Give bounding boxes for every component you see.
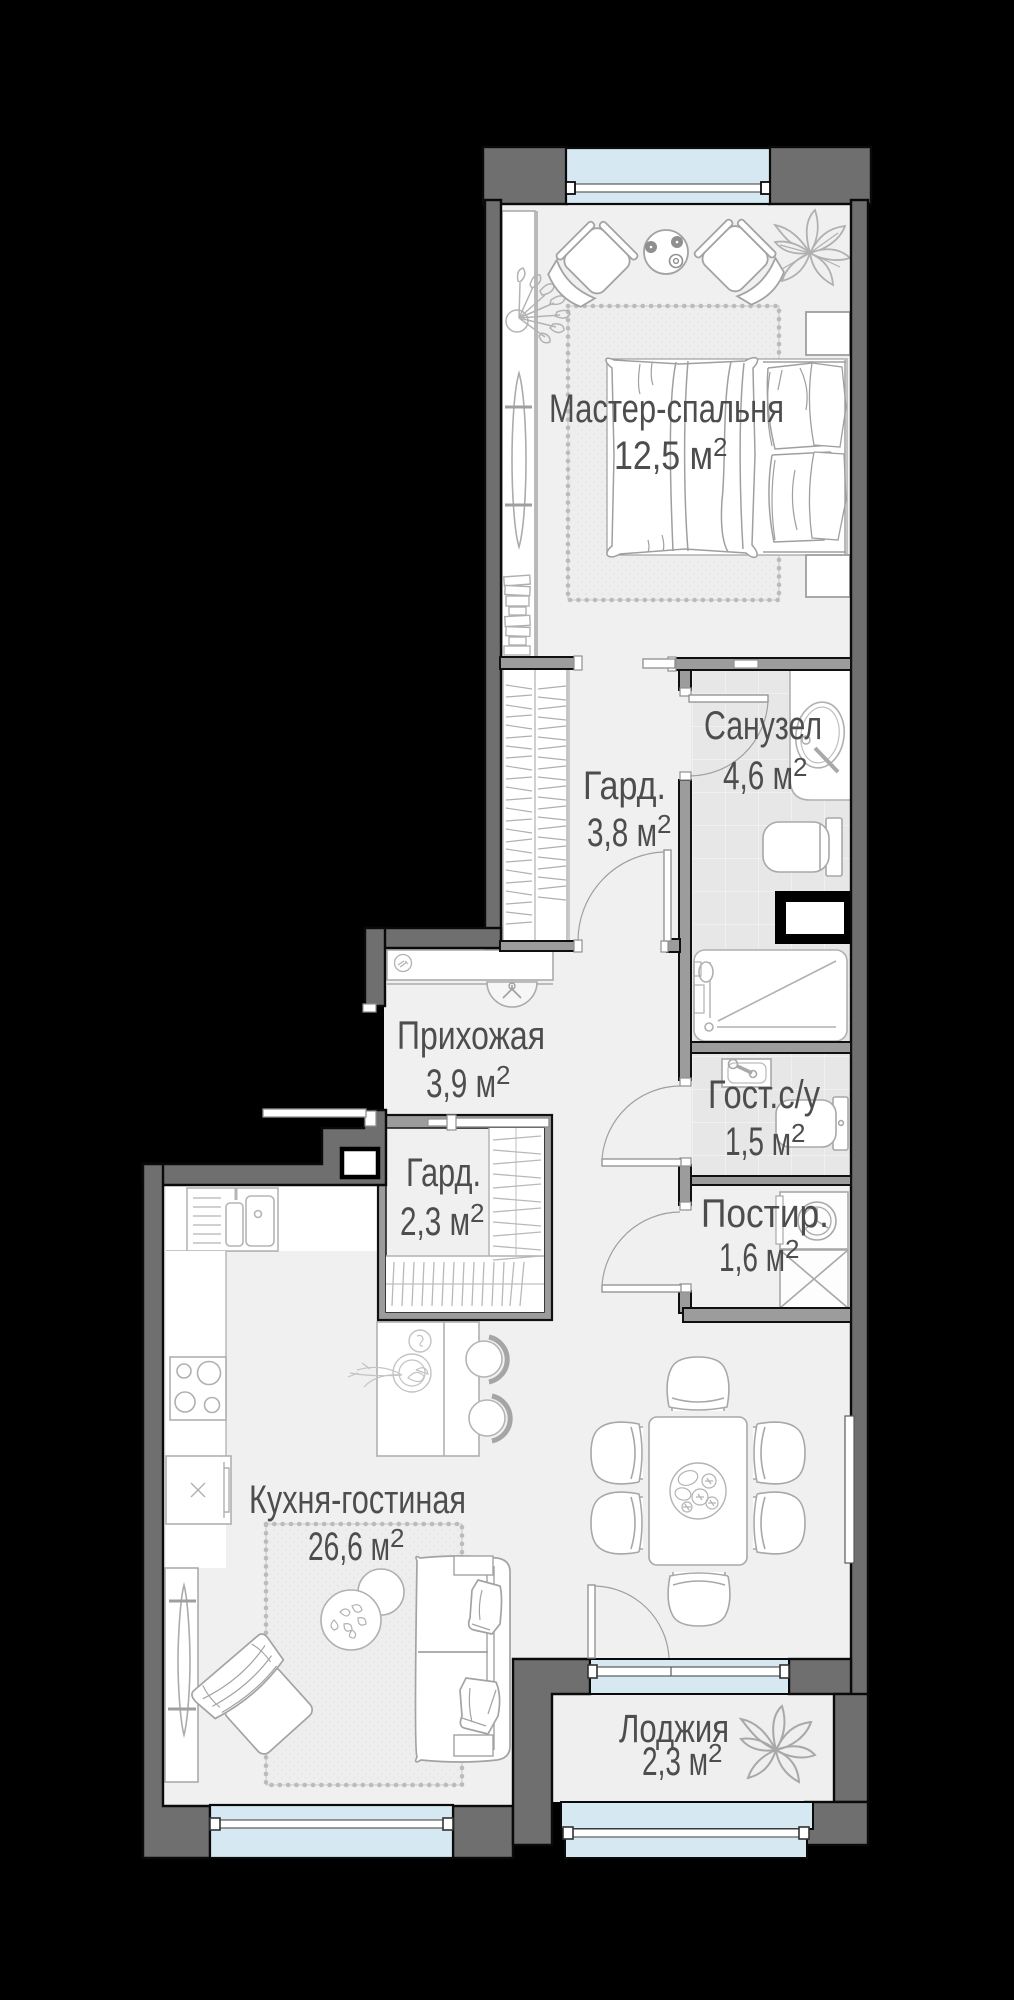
svg-text:Прихожая: Прихожая — [397, 1014, 545, 1058]
svg-text:12,5 м2: 12,5 м2 — [614, 432, 727, 478]
svg-text:Кухня-гостиная: Кухня-гостиная — [249, 1478, 466, 1522]
svg-text:Постир.: Постир. — [701, 1192, 829, 1236]
svg-text:Санузел: Санузел — [704, 704, 822, 748]
svg-text:Гард.: Гард. — [406, 1151, 481, 1195]
svg-text:26,6 м2: 26,6 м2 — [308, 1523, 404, 1569]
svg-text:Мастер-спальня: Мастер-спальня — [549, 387, 784, 431]
svg-text:Гост.с/у: Гост.с/у — [708, 1073, 820, 1117]
svg-text:Гард.: Гард. — [583, 764, 666, 808]
